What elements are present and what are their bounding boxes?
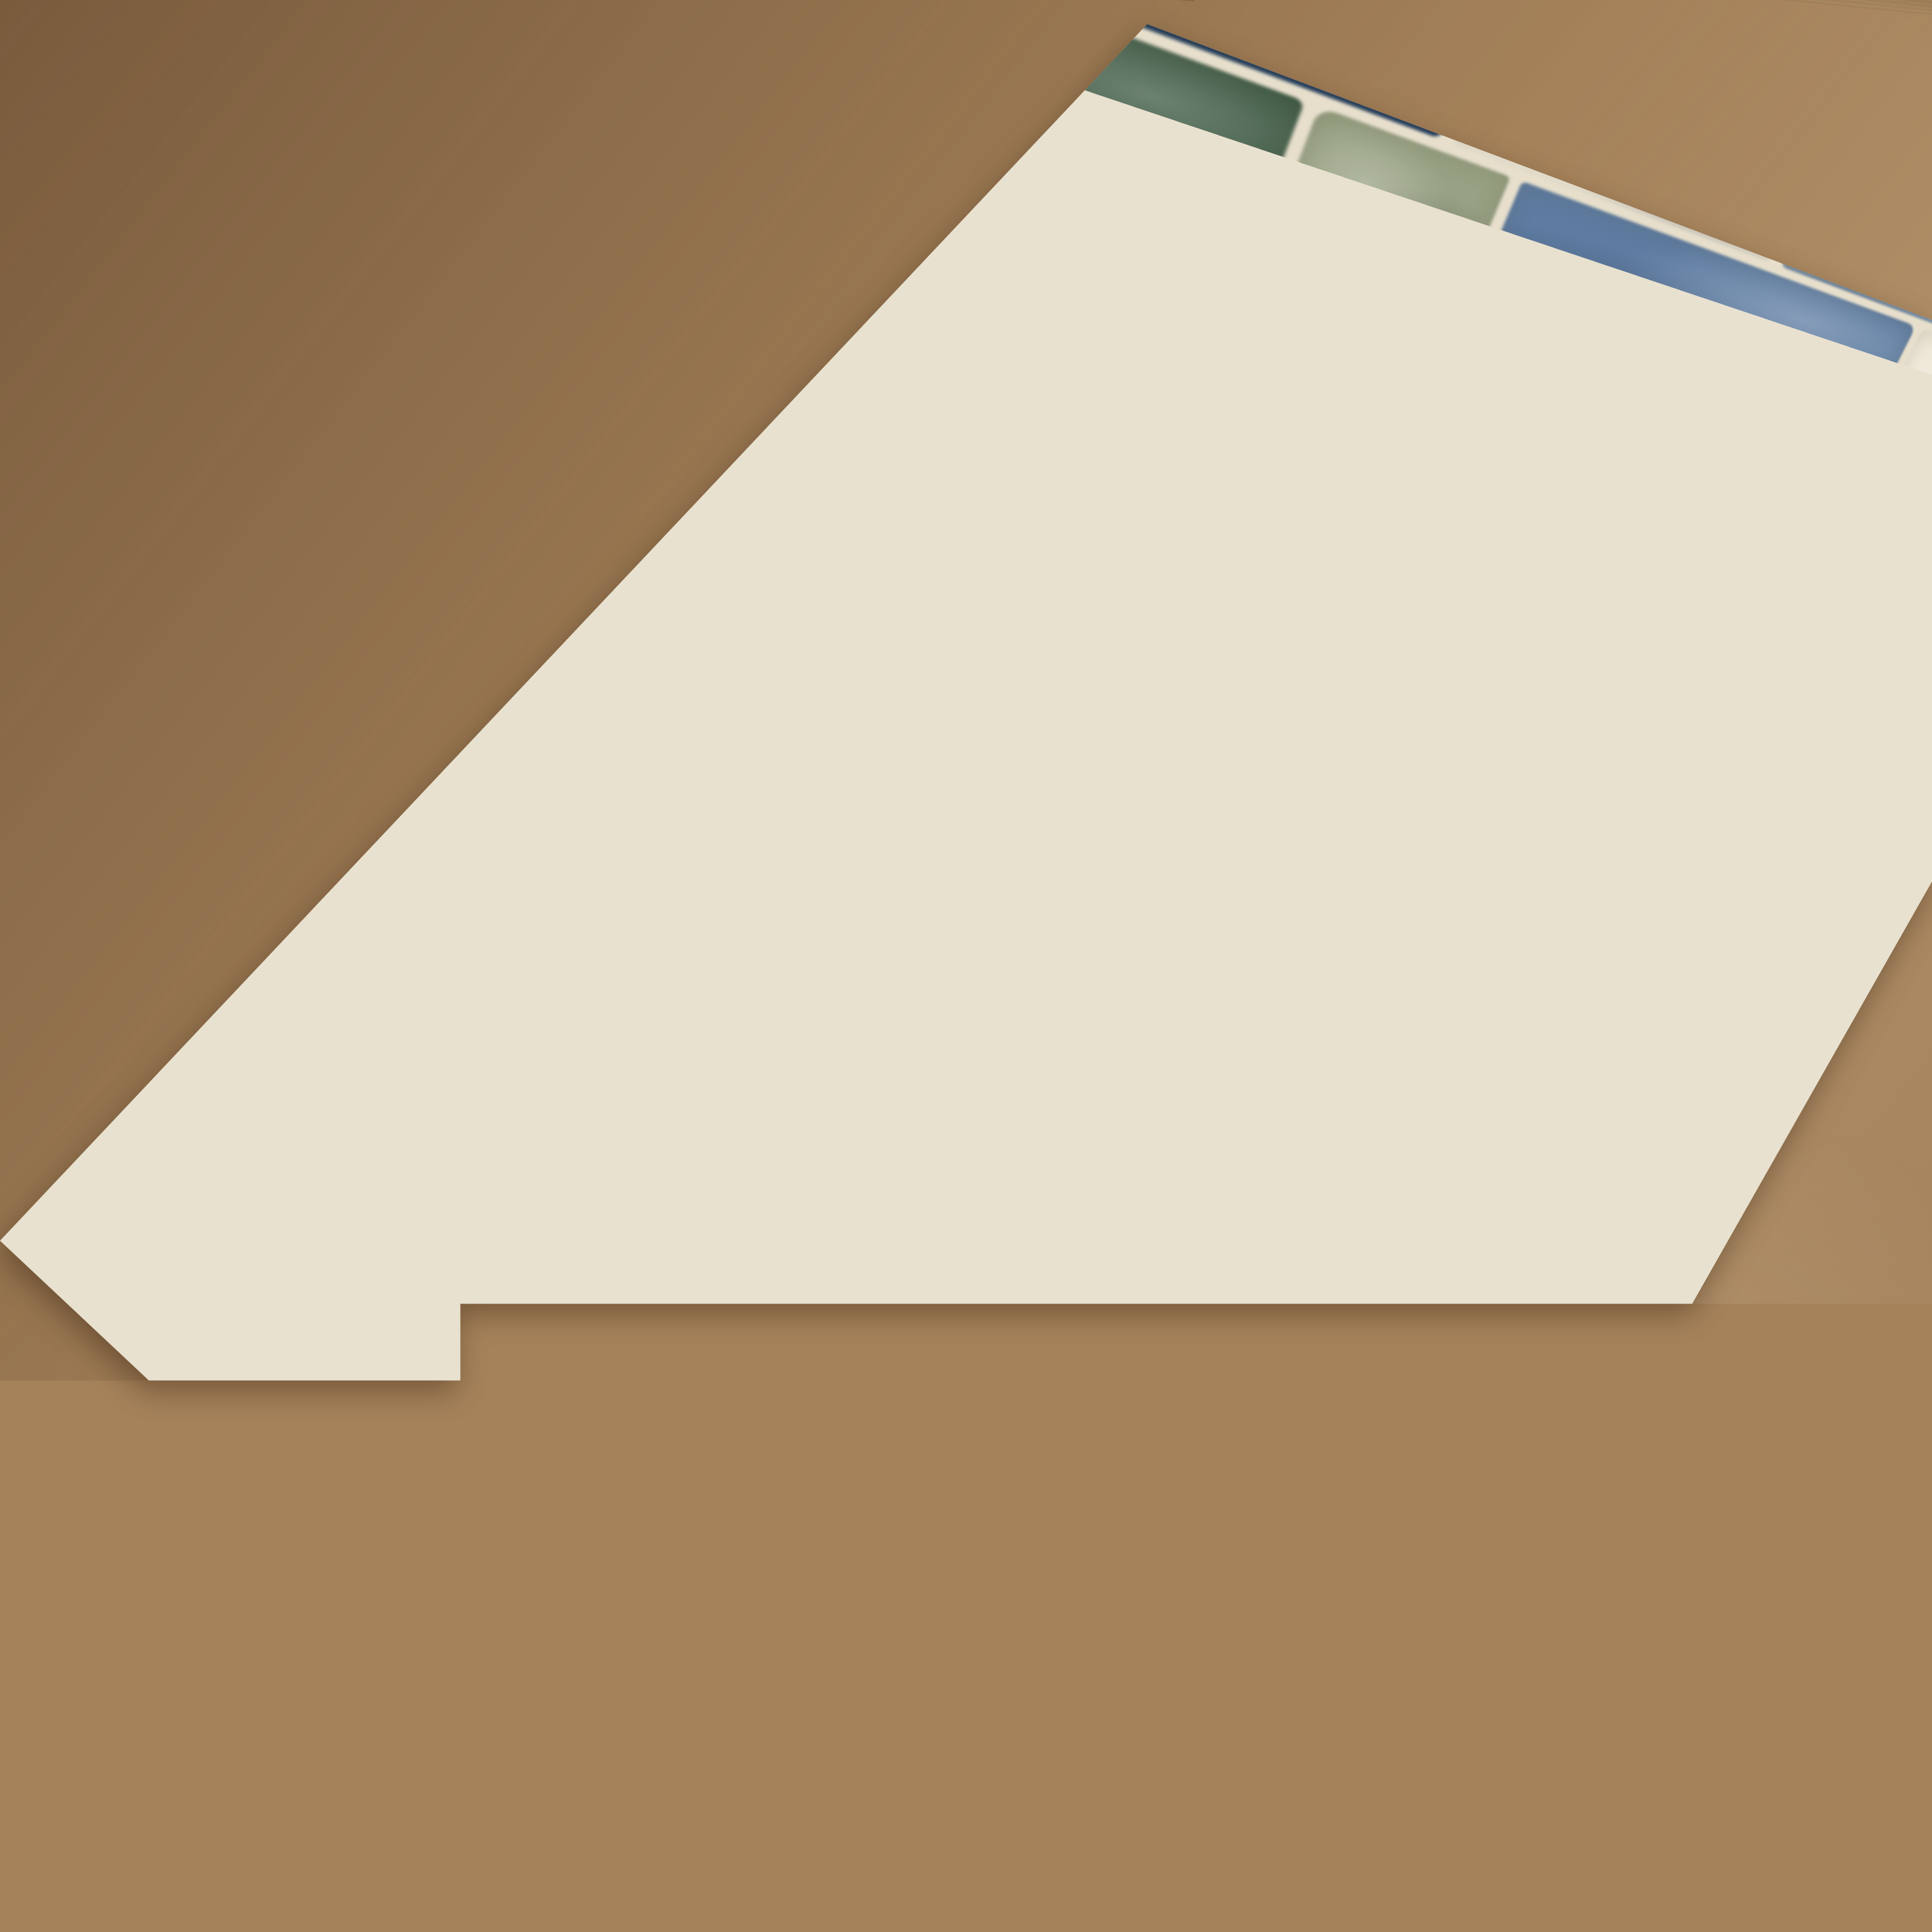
rug-block-moss — [1310, 792, 1642, 886]
scene — [0, 0, 1932, 1932]
rug — [0, 0, 1932, 1932]
rug-block-olive — [791, 901, 1073, 1026]
rug-block-navy — [196, 776, 901, 923]
rug-block-forest — [943, 511, 1230, 658]
rug-block-ivory — [1864, 66, 1932, 260]
rug-block-cream — [0, 1875, 237, 1932]
rug-block-denim — [229, 1692, 760, 1932]
rug-surface — [0, 0, 1932, 1932]
rug-block-ivory — [0, 327, 638, 612]
rug-block-ivory — [0, 0, 730, 75]
rug-block-ivory — [0, 101, 353, 404]
rug-block-parchment — [0, 768, 202, 941]
rug-block-ivory — [1709, 709, 1932, 796]
rug-pattern-rows — [0, 0, 1932, 1932]
rug-block-steel — [1127, 0, 1614, 25]
rug-block-denim — [1572, 0, 1905, 163]
rug-block-ivory — [877, 786, 1341, 900]
rug-block-parchment — [0, 1630, 430, 1932]
rug-block-taupe — [0, 575, 691, 772]
rug-block-steel — [1610, 797, 1862, 876]
rug-pattern — [0, 0, 1932, 1932]
rug-block-ivory — [0, 1797, 193, 1932]
rug-block-denim — [617, 466, 971, 638]
rug-block-ivory — [669, 632, 1174, 781]
rug-block-denim — [1469, 691, 1744, 792]
rug-block-ivory — [0, 1550, 354, 1875]
rug-block-ivory — [0, 1378, 62, 1615]
rug-block-olive — [1142, 667, 1504, 787]
rug-block-beige — [101, 0, 880, 302]
